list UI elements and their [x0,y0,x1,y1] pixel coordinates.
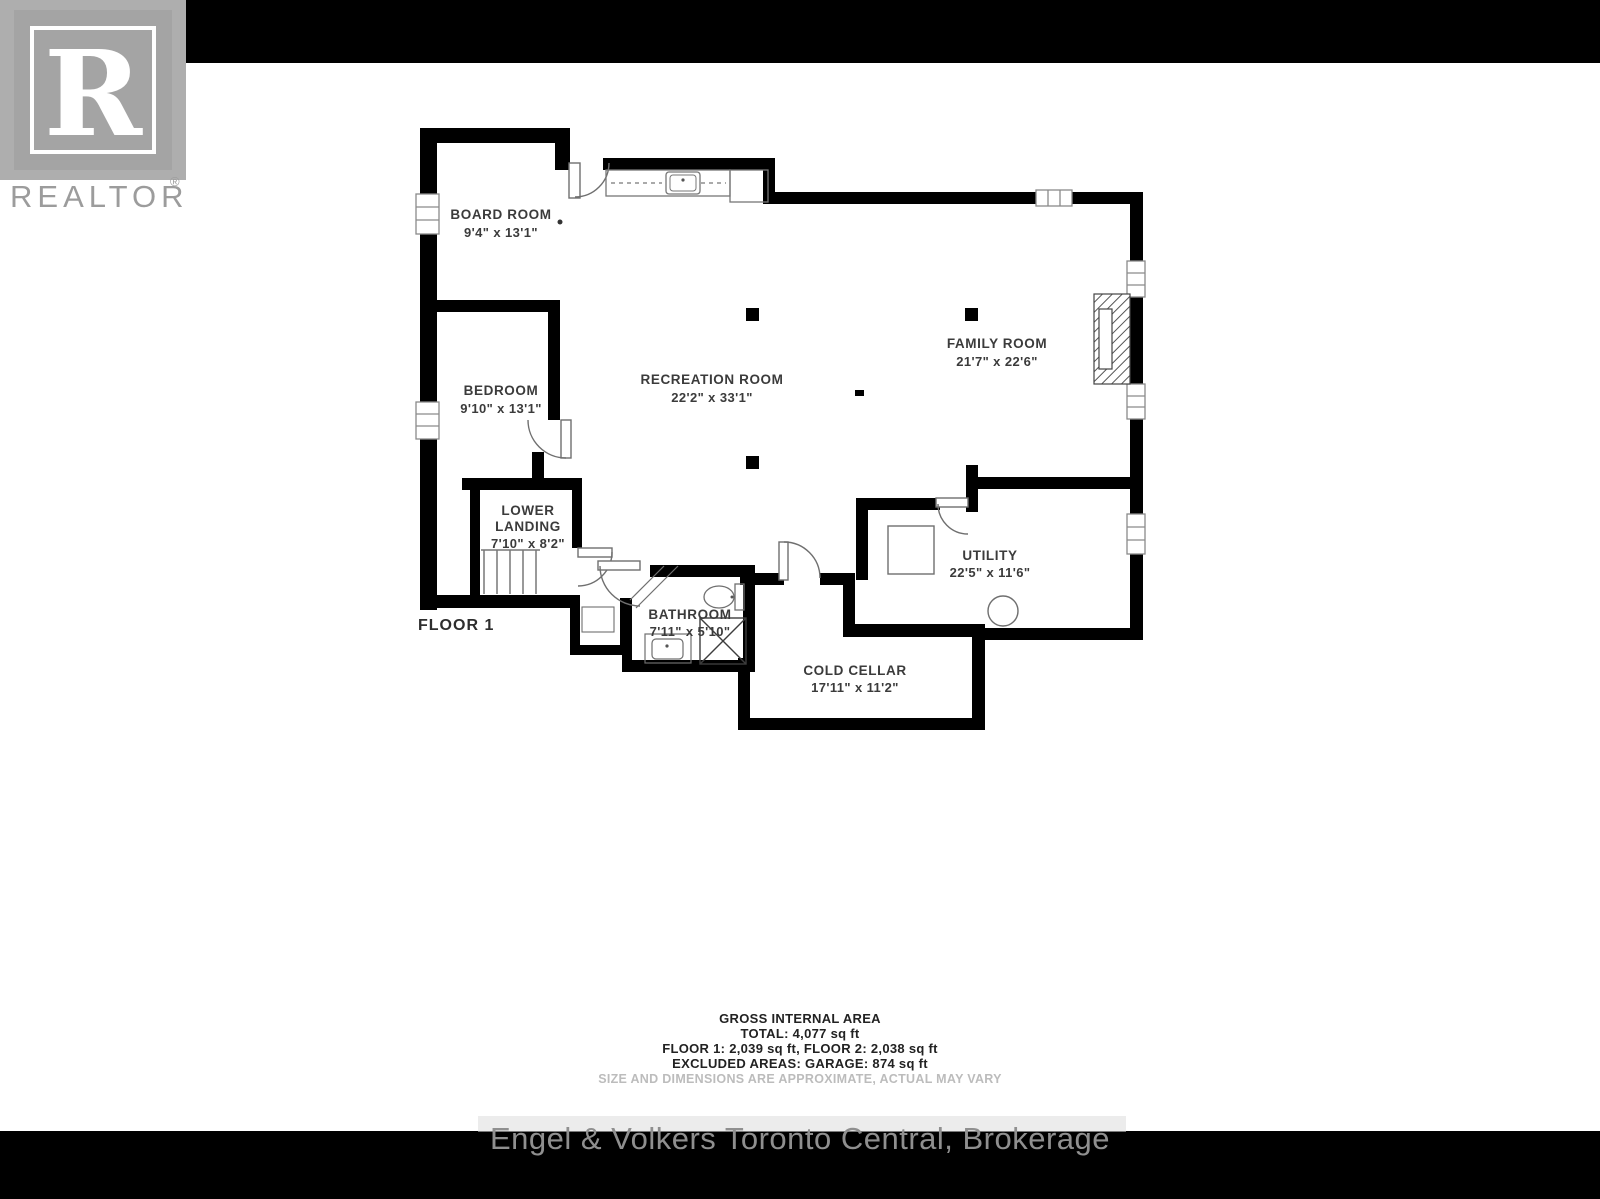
room-label-lower-landing-1: LOWER [501,503,554,518]
window-icon [416,402,439,439]
window-icon [1127,261,1145,297]
realtor-wordmark: REALTOR [10,179,189,214]
summary-title: GROSS INTERNAL AREA [719,1011,881,1026]
window-icon [1036,190,1072,206]
kitchenette [606,170,768,202]
floor-plan-page: R REALTOR ® [0,0,1600,1199]
room-label-lower-landing-2: LANDING [495,519,561,534]
realtor-logo: R REALTOR ® [0,0,189,214]
room-dims-utility: 22'5" x 11'6" [950,565,1031,580]
room-label-bathroom: BATHROOM [648,607,731,622]
column-marker [746,308,759,321]
furnace-icon [888,526,934,574]
window-icon [1127,514,1145,554]
top-black-bar [0,0,1600,63]
summary-excluded: EXCLUDED AREAS: GARAGE: 874 sq ft [672,1056,928,1071]
room-dims-cold-cellar: 17'11" x 11'2" [811,680,899,695]
floor-plan-canvas: R REALTOR ® [0,0,1600,1199]
registered-trademark-icon: ® [170,174,180,189]
summary-disclaimer: SIZE AND DIMENSIONS ARE APPROXIMATE, ACT… [598,1072,1002,1086]
room-label-recreation-room: RECREATION ROOM [641,372,784,387]
summary-total: TOTAL: 4,077 sq ft [740,1026,859,1041]
window-icon [416,194,439,234]
column-marker [965,308,978,321]
sink-icon [666,172,700,194]
room-label-family-room: FAMILY ROOM [947,336,1047,351]
wall-tick-dot [558,220,563,225]
room-dims-family-room: 21'7" x 22'6" [956,354,1038,369]
column-marker [746,456,759,469]
floor-number-label: FLOOR 1 [418,617,494,634]
room-dims-recreation-room: 22'2" x 33'1" [671,390,753,405]
room-label-cold-cellar: COLD CELLAR [803,663,906,678]
logo-letter-r: R [44,24,143,163]
room-dims-lower-landing: 7'10" x 8'2" [491,536,565,551]
brokerage-name: Engel & Volkers Toronto Central, Brokera… [490,1121,1110,1156]
closet-shelf [582,607,614,632]
stairs-icon [481,550,540,594]
room-dims-bedroom: 9'10" x 13'1" [460,401,542,416]
room-label-board-room: BOARD ROOM [450,207,551,222]
window-icon [1127,384,1145,419]
summary-floors: FLOOR 1: 2,039 sq ft, FLOOR 2: 2,038 sq … [662,1041,938,1056]
area-summary: GROSS INTERNAL AREA TOTAL: 4,077 sq ft F… [598,1011,1002,1086]
cabinet [730,170,768,202]
column-marker-small [855,390,864,396]
fireplace-icon [1094,294,1130,384]
door-arc [936,498,968,534]
room-dims-bathroom: 7'11" x 5'10" [650,624,731,639]
door-arc [598,561,640,606]
room-label-utility: UTILITY [962,548,1017,563]
room-label-bedroom: BEDROOM [464,383,539,398]
water-heater-icon [988,596,1018,626]
door-arc [779,542,820,580]
room-dims-board-room: 9'4" x 13'1" [464,225,538,240]
